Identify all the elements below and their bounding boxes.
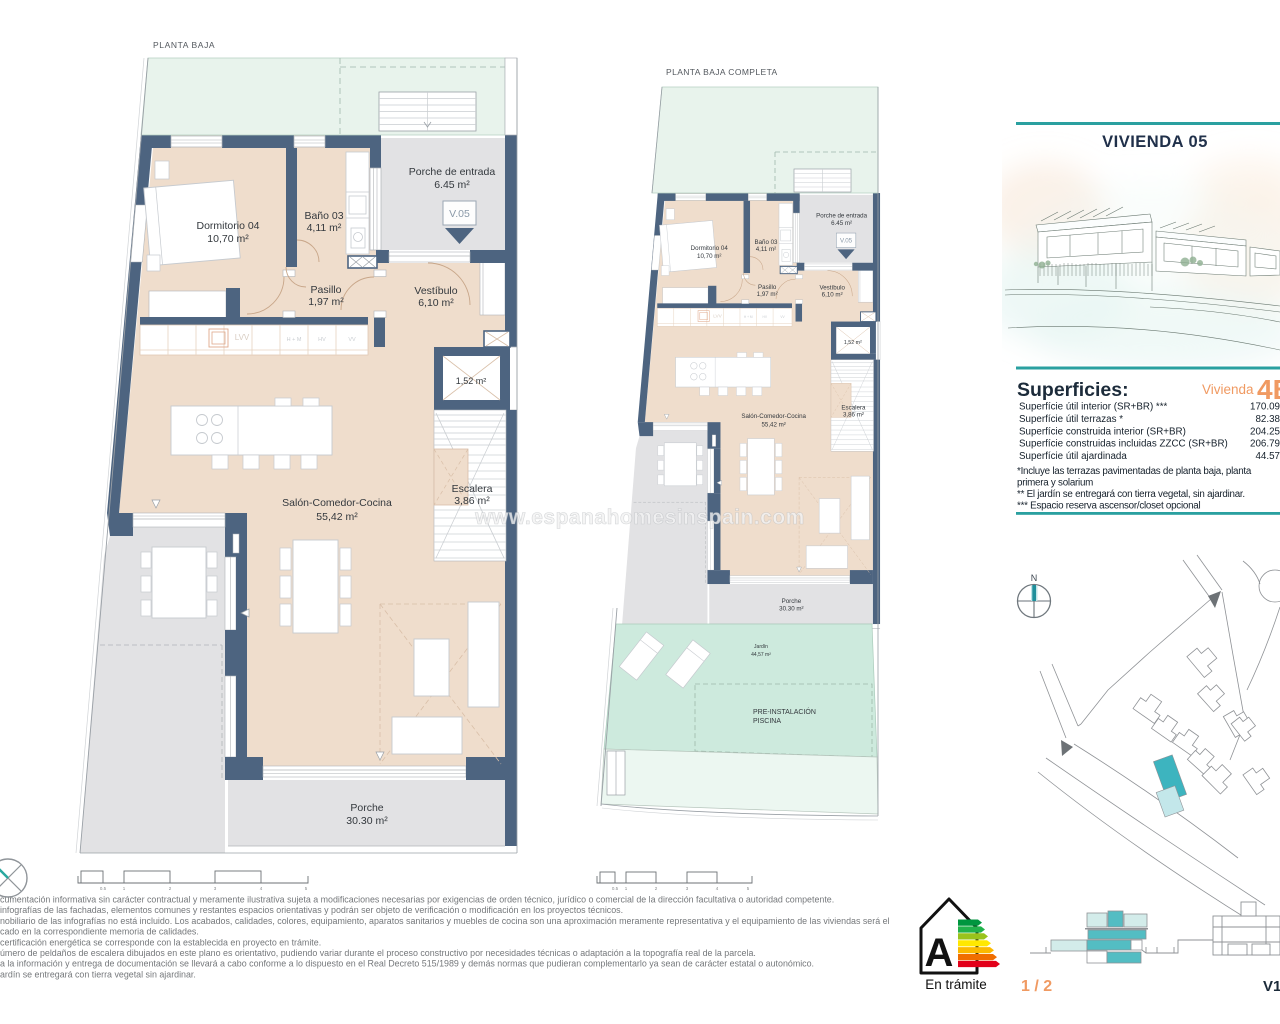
svg-text:5: 5 — [305, 886, 308, 891]
svg-text:5: 5 — [747, 886, 750, 891]
svg-text:1: 1 — [625, 886, 628, 891]
svg-text:N: N — [1031, 573, 1038, 583]
svg-text:www.espanahomesinspain.com: www.espanahomesinspain.com — [474, 506, 805, 529]
svg-text:PLANTA BAJA: PLANTA BAJA — [153, 40, 215, 50]
svg-text:ardín se entregará con tierra: ardín se entregará con tierra vegetal si… — [0, 969, 196, 979]
svg-text:PRE-INSTALACIÓN: PRE-INSTALACIÓN — [753, 707, 816, 716]
svg-text:Porche de entrada: Porche de entrada — [409, 166, 496, 178]
svg-text:HV: HV — [318, 337, 326, 343]
svg-text:2: 2 — [169, 886, 172, 891]
svg-text:Superficies:: Superficies: — [1017, 379, 1129, 401]
svg-text:Porche: Porche — [350, 802, 383, 814]
svg-text:0.5: 0.5 — [612, 886, 619, 891]
svg-text:204.25: 204.25 — [1250, 426, 1280, 437]
svg-text:2: 2 — [655, 886, 658, 891]
svg-text:55,42 m²: 55,42 m² — [316, 511, 358, 523]
svg-text:*Incluye las terrazas paviment: *Incluye las terrazas pavimentadas de pl… — [1017, 466, 1252, 477]
svg-text:infografías de las fachadas, e: infografías de las fachadas, elementos c… — [0, 905, 623, 915]
svg-text:certificación energética se co: certificación energética se corresponde … — [0, 937, 321, 947]
svg-text:Superfície útil interior (SR+B: Superfície útil interior (SR+BR) *** — [1019, 402, 1168, 413]
svg-text:Escalera: Escalera — [452, 483, 493, 495]
svg-text:82.38: 82.38 — [1255, 414, 1280, 425]
svg-text:Superfície útil ajardinada: Superfície útil ajardinada — [1019, 451, 1127, 462]
svg-text:a la información y entrega de: a la información y entrega de documentac… — [0, 959, 814, 969]
svg-text:** El jardín se entregará con: ** El jardín se entregará con tierra veg… — [1017, 489, 1245, 500]
svg-text:A: A — [925, 931, 954, 975]
svg-text:primera y solarium: primera y solarium — [1017, 478, 1093, 489]
svg-text:Jardín: Jardín — [754, 644, 768, 650]
svg-text:V1: V1 — [1263, 978, 1280, 995]
svg-text:PISCINA: PISCINA — [753, 718, 781, 725]
svg-text:4: 4 — [716, 886, 719, 891]
svg-text:1: 1 — [123, 886, 126, 891]
svg-text:4: 4 — [260, 886, 263, 891]
svg-text:30.30 m²: 30.30 m² — [346, 815, 388, 827]
svg-text:H + M: H + M — [287, 337, 302, 343]
svg-text:úmero de peldaños de escalera: úmero de peldaños de escalera dibujados … — [0, 948, 756, 958]
svg-text:Salón-Comedor-Cocina: Salón-Comedor-Cocina — [282, 497, 392, 509]
svg-text:Superfície útil terrazas *: Superfície útil terrazas * — [1019, 414, 1123, 425]
svg-text:4B: 4B — [1257, 374, 1280, 405]
svg-text:nobiliario de las infografías: nobiliario de las infografías no está in… — [0, 916, 890, 926]
svg-text:PLANTA BAJA COMPLETA: PLANTA BAJA COMPLETA — [666, 67, 778, 77]
svg-text:Dormitorio 04: Dormitorio 04 — [196, 220, 259, 232]
svg-text:cumentación informativa sin ca: cumentación informativa sin carácter con… — [0, 895, 834, 905]
svg-text:Superfície construidas incluid: Superfície construidas incluidas ZZCC (S… — [1019, 439, 1228, 450]
svg-text:LVV: LVV — [235, 333, 250, 342]
svg-text:3: 3 — [214, 886, 217, 891]
svg-text:3: 3 — [686, 886, 689, 891]
svg-text:V.05: V.05 — [449, 208, 470, 220]
svg-text:1,97 m²: 1,97 m² — [308, 296, 344, 308]
svg-text:206.79: 206.79 — [1250, 439, 1280, 450]
svg-text:cado en la correspondiente mem: cado en la correspondiente memoria de ca… — [0, 927, 199, 937]
svg-text:En trámite: En trámite — [925, 977, 987, 992]
svg-text:6,10 m²: 6,10 m² — [418, 297, 454, 309]
svg-text:VIVIENDA 05: VIVIENDA 05 — [1102, 133, 1208, 151]
svg-text:*** Espacio reserva ascensor/c: *** Espacio reserva ascensor/closet opci… — [1017, 501, 1200, 512]
svg-text:44.57: 44.57 — [1255, 451, 1280, 462]
svg-text:4,11 m²: 4,11 m² — [307, 222, 342, 234]
svg-text:Vivienda: Vivienda — [1202, 382, 1254, 397]
svg-text:Baño 03: Baño 03 — [304, 210, 343, 222]
svg-text:44,57 m²: 44,57 m² — [751, 652, 771, 658]
svg-text:Vestíbulo: Vestíbulo — [414, 285, 457, 297]
svg-text:6.45 m²: 6.45 m² — [434, 179, 470, 191]
svg-text:10,70 m²: 10,70 m² — [207, 233, 249, 245]
svg-text:1,52 m²: 1,52 m² — [456, 376, 487, 386]
svg-text:Superfície construida interior: Superfície construida interior (SR+BR) — [1019, 426, 1186, 437]
svg-text:170.09: 170.09 — [1250, 402, 1280, 413]
svg-text:1 / 2: 1 / 2 — [1021, 978, 1052, 995]
svg-text:VV: VV — [348, 337, 356, 343]
svg-text:Pasillo: Pasillo — [311, 284, 342, 296]
svg-text:0.5: 0.5 — [100, 886, 107, 891]
